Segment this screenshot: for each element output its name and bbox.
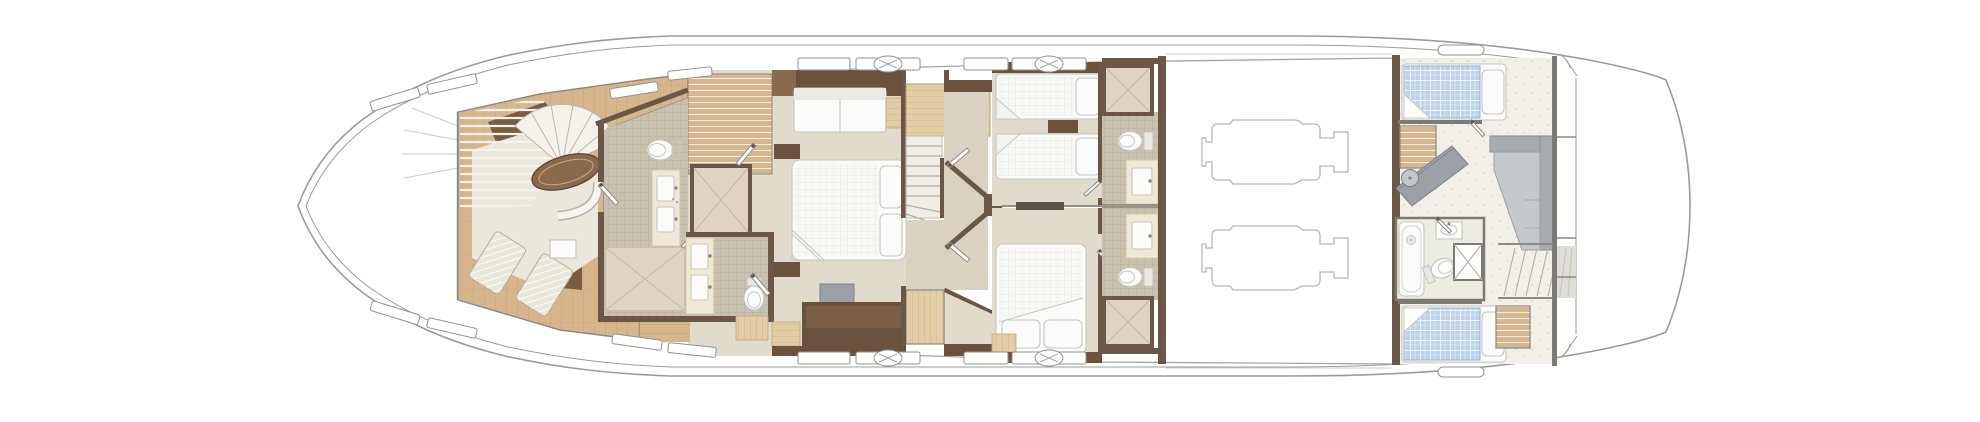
- ensuite-shower-bottom: [1102, 296, 1154, 348]
- shelf: [992, 334, 1016, 352]
- deck-hatch: [874, 350, 902, 366]
- engine-room: [1158, 54, 1400, 368]
- wardrobe-louver: [1496, 306, 1530, 348]
- aft-step-wedge: [1557, 246, 1576, 298]
- yacht-lower-deck-plan: [0, 0, 1980, 422]
- double-guest-cabin: [992, 202, 1116, 363]
- side-table: [550, 240, 576, 258]
- deck-hatch: [874, 56, 902, 72]
- ensuite-vanity-bottom: [1126, 214, 1158, 258]
- ensuite-toilet-top: [1118, 132, 1153, 151]
- engine-room-aft-bulkhead: [1392, 55, 1400, 365]
- pillow: [1044, 320, 1082, 348]
- port-engine: [1202, 120, 1348, 184]
- crew-quarters: [1396, 56, 1557, 366]
- ensuite-shower-top: [1102, 64, 1154, 116]
- bow-stowage: [402, 108, 458, 300]
- twin-sink-vanity-bottom: [686, 238, 714, 314]
- engine-room-fwd-bulkhead: [1158, 56, 1166, 364]
- single-bed-1: [996, 74, 1102, 119]
- pillow: [1076, 78, 1100, 115]
- nightstand: [1048, 120, 1078, 133]
- double-ensuite-bathroom: [1102, 208, 1160, 354]
- nightstand-south: [774, 262, 800, 277]
- master-double-bed: [792, 160, 906, 260]
- ensuite-vanity-top: [1126, 160, 1158, 204]
- pillow: [1076, 138, 1100, 175]
- nightstand-north: [774, 144, 800, 159]
- master-dressing-louvers: [688, 74, 772, 174]
- shelf-sw: [772, 322, 800, 346]
- twin-guest-cabin: [992, 62, 1102, 206]
- crew-bathroom: [1396, 217, 1484, 300]
- bathtub: [1399, 222, 1424, 296]
- seat-sw: [736, 316, 768, 340]
- ensuite-toilet-bottom: [1118, 268, 1153, 287]
- twin-sink-vanity-top: [652, 170, 680, 246]
- partition-recess: [1016, 202, 1064, 210]
- master-aft-sofa: [802, 302, 906, 346]
- shower-pan-bottom: [606, 248, 684, 310]
- pillow: [880, 214, 902, 256]
- transom-platform: [1557, 60, 1577, 352]
- pillow: [1482, 70, 1504, 114]
- crew-shower: [1454, 244, 1482, 280]
- twin-ensuite-bathroom: [1102, 58, 1160, 208]
- deck-hatch: [1035, 56, 1063, 72]
- pillow: [880, 166, 902, 208]
- single-bed-2: [996, 134, 1102, 179]
- starboard-engine: [1202, 226, 1348, 290]
- master-sofa: [794, 88, 886, 132]
- crew-aft-wall: [1552, 56, 1557, 366]
- deck-hatch: [1035, 350, 1063, 366]
- wardrobe-louver-sw: [906, 290, 944, 344]
